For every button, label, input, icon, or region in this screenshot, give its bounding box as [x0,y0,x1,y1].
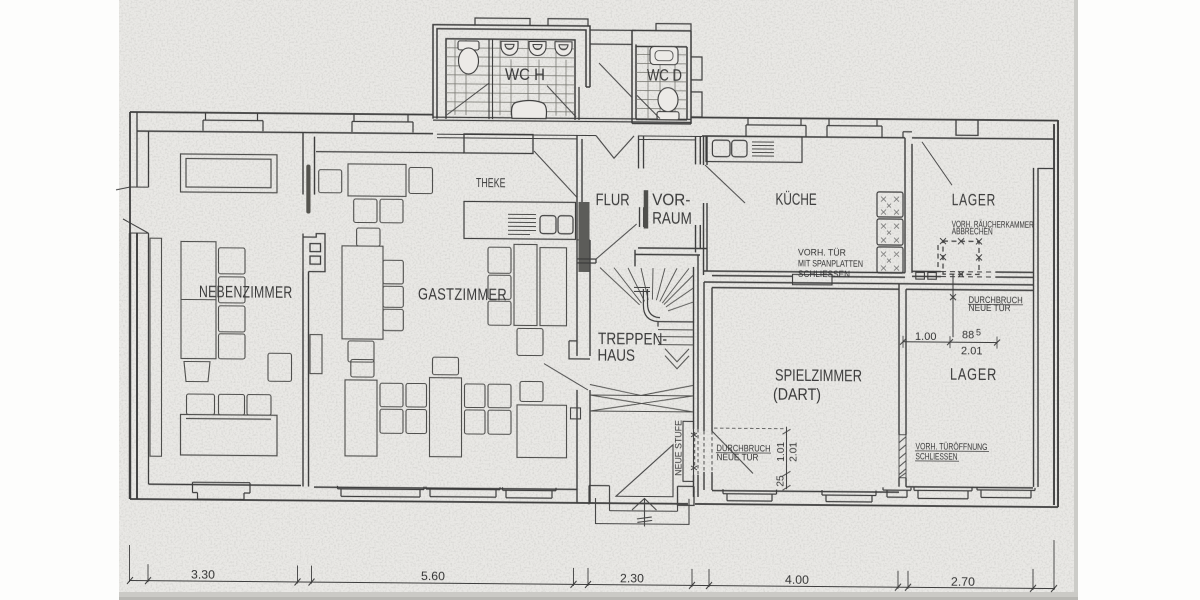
svg-text:(DART): (DART) [773,386,821,404]
svg-text:RAUM: RAUM [652,210,692,228]
svg-text:1.00: 1.00 [915,331,936,343]
svg-text:SCHLIESSEN: SCHLIESSEN [798,269,850,280]
svg-text:NEBENZIMMER: NEBENZIMMER [199,283,293,302]
svg-text:SPIELZIMMER: SPIELZIMMER [775,367,862,386]
svg-text:LAGER: LAGER [952,191,996,209]
svg-text:VOR-: VOR- [652,191,690,209]
svg-text:NEUE STUFE: NEUE STUFE [674,420,684,476]
svg-text:2.01: 2.01 [789,442,800,462]
svg-text:5.60: 5.60 [421,569,445,583]
svg-text:4.00: 4.00 [785,573,809,587]
svg-text:NEUE TÜR: NEUE TÜR [717,452,759,462]
svg-text:WC D: WC D [647,67,682,85]
svg-text:ABBRECHEN: ABBRECHEN [952,226,993,236]
svg-text:2.01: 2.01 [961,345,982,357]
svg-text:GASTZIMMER: GASTZIMMER [418,286,507,305]
svg-text:3.30: 3.30 [191,568,215,582]
svg-text:HAUS: HAUS [598,347,636,365]
svg-text:1.01: 1.01 [776,441,787,461]
svg-text:25: 25 [776,475,787,487]
svg-text:2.70: 2.70 [951,575,975,589]
svg-text:VORH. TÜR: VORH. TÜR [798,247,846,258]
svg-text:THEKE: THEKE [476,176,506,190]
svg-text:2.30: 2.30 [620,571,644,585]
svg-text:5: 5 [976,327,981,337]
svg-text:KÜCHE: KÜCHE [776,191,817,209]
svg-text:88: 88 [962,329,974,341]
svg-text:WC H: WC H [505,66,545,84]
svg-text:FLUR: FLUR [596,191,630,209]
svg-text:LAGER: LAGER [950,366,997,384]
